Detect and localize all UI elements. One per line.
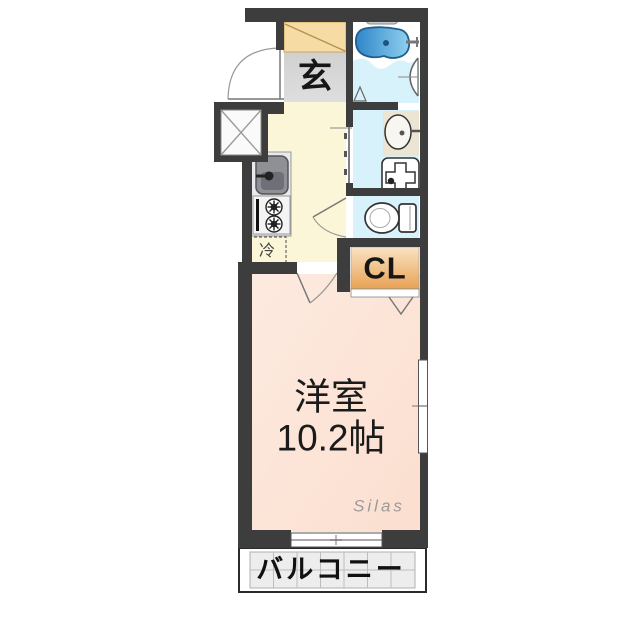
entrance-label: 玄 <box>298 60 332 94</box>
washing-machine-drain <box>388 178 394 184</box>
room-name-label: 洋室 <box>294 379 368 416</box>
watermark-label: Silas <box>353 498 405 515</box>
washbasin-icon <box>385 115 411 149</box>
bathtub-drain <box>383 40 389 46</box>
bathtub-icon <box>356 27 409 58</box>
balcony-window-icon <box>291 533 382 547</box>
kitchen-faucet-knob <box>265 172 274 181</box>
toilet-tank <box>399 204 416 232</box>
floor-plan: 玄 CL 冷 洋室 10.2帖 バルコニー Silas <box>0 0 640 640</box>
closet-opening <box>351 289 419 297</box>
washbasin-drain <box>400 131 405 136</box>
room-size-label: 10.2帖 <box>276 420 385 457</box>
closet-label: CL <box>363 253 406 284</box>
floor-plan-drawing <box>0 0 640 640</box>
stove-panel <box>256 199 259 231</box>
balcony-label: バルコニー <box>256 557 405 584</box>
entrance-door-swing-icon <box>228 48 284 99</box>
refrigerator-label: 冷 <box>259 244 275 260</box>
